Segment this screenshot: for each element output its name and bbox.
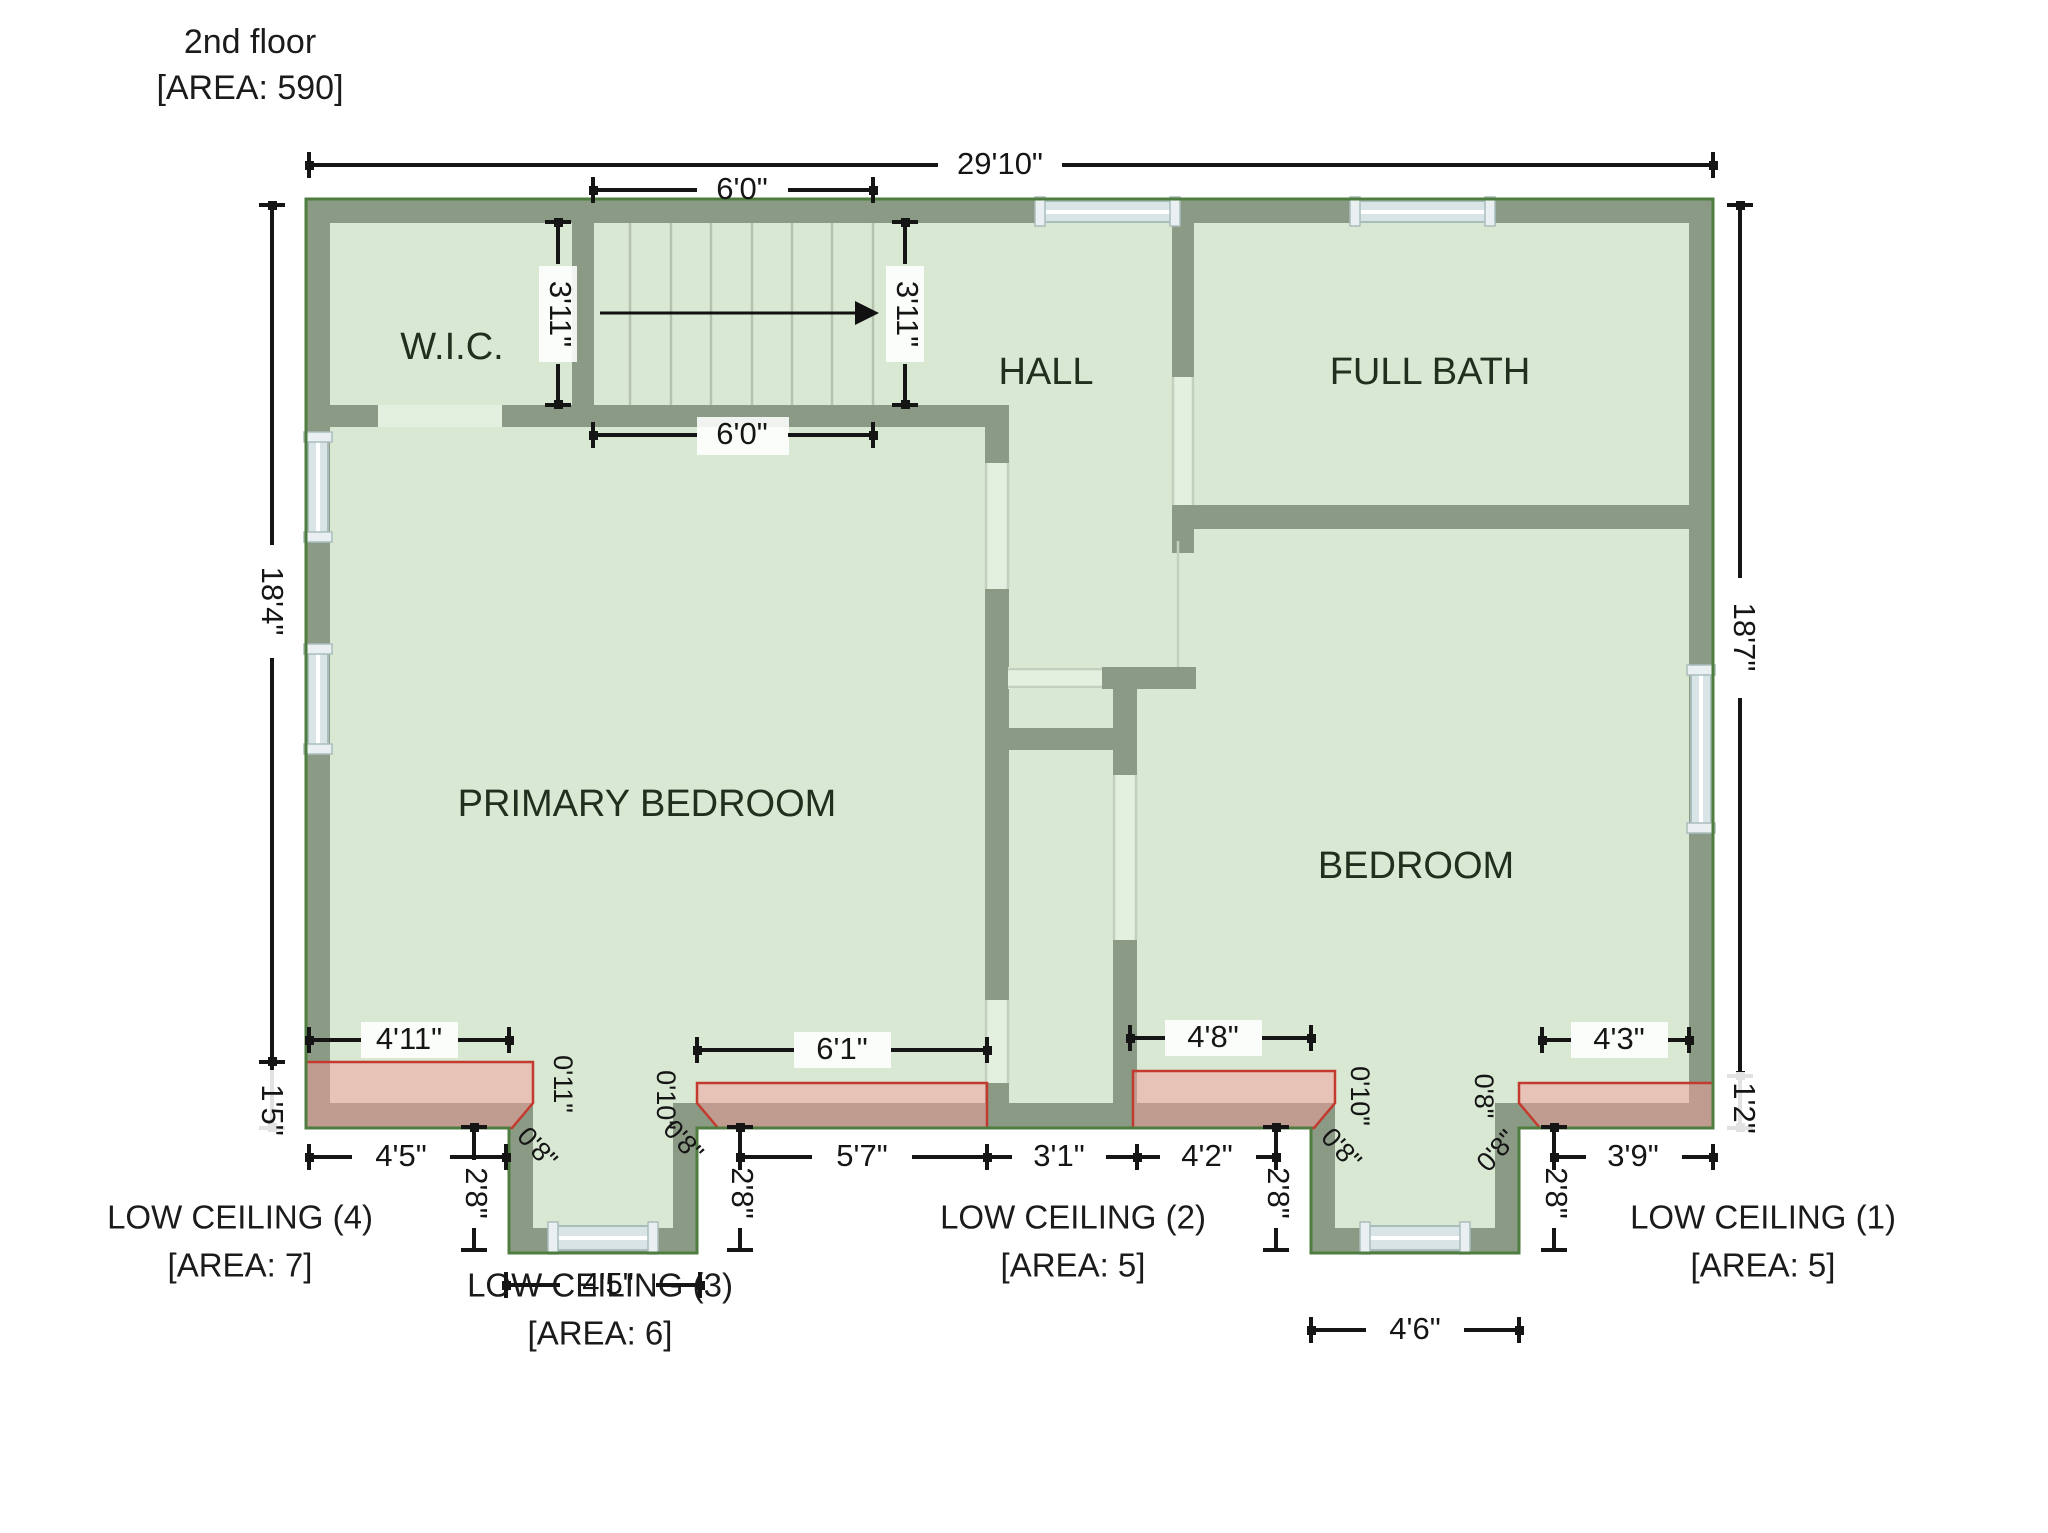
corner-label-b2r-a: 0'8" — [1469, 1074, 1499, 1119]
room-label-full-bath: FULL BATH — [1330, 351, 1531, 393]
dim-riser1-label: 2'8" — [459, 1167, 494, 1218]
low-ceiling-zone-4 — [306, 1062, 533, 1128]
dim-left-low-label: 1'5" — [255, 1084, 290, 1135]
low-ceiling-zone-2 — [1133, 1071, 1335, 1128]
closet-stub-left — [985, 667, 1008, 689]
dim-left-main: 18'4" — [255, 201, 290, 1066]
divider-stub-top — [985, 427, 1009, 463]
low-ceiling-3-area: [AREA: 6] — [528, 1315, 673, 1352]
plan-title: 2nd floor [AREA: 590] — [156, 23, 343, 107]
dim-riser4-label: 2'8" — [1539, 1167, 1574, 1218]
wic-bottom-wall — [330, 405, 378, 427]
dim-total-width: 29'10" — [305, 146, 1718, 181]
title-line1: 2nd floor — [184, 23, 316, 61]
low-ceiling-labels: LOW CEILING (4) [AREA: 7] LOW CEILING (3… — [107, 1199, 1896, 1352]
room-label-hall: HALL — [998, 351, 1093, 393]
dim-row4: 4'2" — [1137, 1138, 1281, 1173]
dim-row5-label: 3'9" — [1607, 1138, 1658, 1173]
low-ceiling-2-name: LOW CEILING (2) — [940, 1199, 1206, 1236]
dim-row2: 5'7" — [736, 1138, 992, 1173]
hall-bath-wall — [1172, 223, 1194, 377]
low-ceiling-2-area: [AREA: 5] — [1001, 1247, 1146, 1284]
dim-row5: 3'9" — [1550, 1138, 1718, 1173]
low-ceiling-4-name: LOW CEILING (4) — [107, 1199, 373, 1236]
room-label-primary-bedroom: PRIMARY BEDROOM — [458, 783, 837, 825]
dim-stair-bottom-label: 6'0" — [716, 416, 767, 451]
dim-strip2-label: 4'8" — [1187, 1019, 1238, 1054]
dim-right-main-label: 18'7" — [1727, 603, 1762, 672]
dim-left-main-label: 18'4" — [255, 567, 290, 636]
dim-strip3-label: 6'1" — [816, 1031, 867, 1066]
closet-sliding-door — [1008, 667, 1102, 689]
dim-row4-label: 4'2" — [1181, 1138, 1232, 1173]
low-ceiling-1-name: LOW CEILING (1) — [1630, 1199, 1896, 1236]
dim-left-low: 1'5" — [251, 1062, 290, 1150]
dim-stair-right-label: 3'11" — [890, 281, 925, 347]
dim-riser2: 2'8" — [725, 1123, 760, 1250]
dim-stair-top-label: 6'0" — [716, 171, 767, 206]
low-ceiling-zone-1 — [1519, 1083, 1713, 1128]
bedroom-door — [1113, 775, 1137, 940]
center-wall-stub — [985, 1083, 1009, 1103]
dim-bump1-width-label: 4'5" — [582, 1266, 633, 1301]
dim-stair-left-label: 3'11" — [543, 281, 578, 347]
floor-plan: W.I.C. HALL FULL BATH PRIMARY BEDROOM BE… — [0, 0, 2048, 1533]
low-ceiling-zone-3 — [697, 1083, 987, 1128]
corner-label-b2l-a: 0'10" — [1345, 1066, 1375, 1126]
dim-right-main: 18'7" — [1727, 201, 1762, 1080]
dim-riser3: 2'8" — [1261, 1123, 1296, 1250]
bedroom-wall-upper — [1113, 689, 1137, 775]
dim-total-width-label: 29'10" — [957, 146, 1043, 181]
bath-door — [1172, 377, 1194, 505]
dim-right-low: 1'2" — [1721, 1072, 1762, 1146]
dim-strip1-label: 4'3" — [1593, 1021, 1644, 1056]
wic-door — [378, 405, 502, 427]
bath-wall-stub — [1172, 503, 1194, 553]
closet-wall-right — [1102, 667, 1196, 689]
floor-plan-page: W.I.C. HALL FULL BATH PRIMARY BEDROOM BE… — [0, 0, 2048, 1533]
room-label-bedroom: BEDROOM — [1318, 845, 1514, 887]
closet-bottom-wall — [1008, 728, 1113, 750]
dim-bump2-width-label: 4'6" — [1389, 1311, 1440, 1346]
hall-door — [985, 463, 1009, 589]
dim-riser2-label: 2'8" — [725, 1167, 760, 1218]
title-line2: [AREA: 590] — [156, 69, 343, 107]
dim-right-low-label: 1'2" — [1727, 1082, 1762, 1133]
corner-label-b1l-a: 0'11" — [548, 1055, 578, 1113]
low-ceiling-1-area: [AREA: 5] — [1691, 1247, 1836, 1284]
low-ceiling-4-area: [AREA: 7] — [168, 1247, 313, 1284]
dim-riser3-label: 2'8" — [1261, 1167, 1296, 1218]
center-wall — [985, 589, 1009, 1000]
dim-strip4-label: 4'11" — [376, 1021, 442, 1056]
room-label-wic: W.I.C. — [400, 326, 503, 368]
dim-row3-label: 3'1" — [1033, 1138, 1084, 1173]
dim-riser4: 2'8" — [1539, 1123, 1574, 1250]
dim-row3: 3'1" — [987, 1138, 1142, 1173]
dim-riser1: 2'8" — [459, 1123, 494, 1250]
dim-row1-label: 4'5" — [375, 1138, 426, 1173]
bath-bottom-wall — [1194, 505, 1689, 529]
dim-row2-label: 5'7" — [836, 1138, 887, 1173]
dim-bump2-width: 4'6" — [1307, 1311, 1524, 1346]
